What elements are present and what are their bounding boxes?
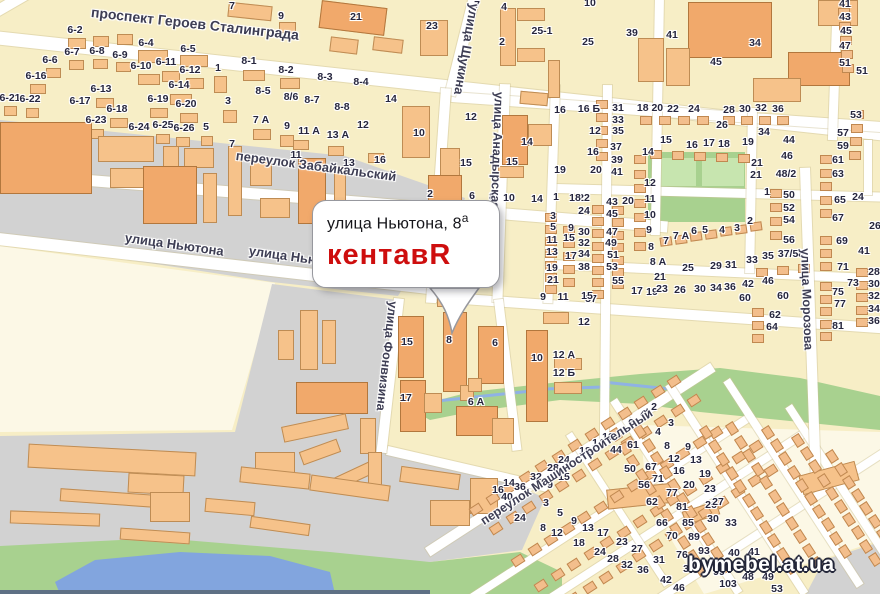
building-number: 62	[646, 497, 658, 508]
building-number: 17	[565, 251, 577, 262]
building-number: 16	[492, 485, 504, 496]
building	[443, 312, 467, 392]
building-number: 41	[611, 167, 623, 178]
building-number: 6-14	[168, 80, 189, 91]
house	[856, 293, 868, 302]
building-number: 32	[578, 238, 590, 249]
house	[741, 116, 753, 125]
building-number: 10	[584, 0, 596, 8]
house	[856, 306, 868, 315]
building	[430, 500, 470, 526]
building-number: 8-4	[353, 77, 368, 88]
building	[214, 76, 227, 93]
building-number: 25	[682, 263, 694, 274]
building-number: 23	[616, 537, 628, 548]
building-number: 8	[648, 242, 654, 253]
building-number: 15	[581, 291, 593, 302]
building	[372, 36, 403, 54]
building-number: 2	[747, 216, 753, 227]
building	[554, 382, 582, 394]
building-number: 9	[284, 121, 290, 132]
building-number: 16	[554, 105, 566, 116]
building-number: 9	[540, 292, 546, 303]
building-number: 20	[590, 165, 602, 176]
building-number: 56	[638, 480, 650, 491]
house	[770, 231, 782, 240]
building-number: 6-5	[180, 44, 195, 55]
building-number: 4	[447, 294, 453, 305]
building-number: 15	[660, 135, 672, 146]
building-number: 70	[666, 531, 678, 542]
building	[223, 110, 237, 123]
house	[672, 151, 684, 160]
building	[117, 34, 133, 45]
building-number: 1	[764, 187, 770, 198]
building-number: 16	[686, 140, 698, 151]
building-number: 6-11	[156, 57, 176, 68]
building-number: 11	[557, 292, 568, 303]
building	[253, 129, 271, 140]
map-callout[interactable]: улица Ньютона, 8а кентавR	[312, 200, 500, 288]
building-number: 8	[664, 441, 670, 452]
building	[150, 108, 168, 118]
building-number: 12	[465, 112, 477, 123]
building-number: 14	[642, 147, 654, 158]
building-number: 8	[540, 523, 546, 534]
building-number: 14	[521, 137, 533, 148]
house	[648, 538, 663, 552]
building-number: 27	[712, 497, 724, 508]
building-number: 33	[746, 255, 758, 266]
building-number: 10	[503, 193, 515, 204]
house	[582, 581, 597, 594]
building-number: 41	[666, 30, 678, 41]
street-segment	[864, 140, 872, 195]
building-number: 19	[742, 137, 754, 148]
house	[752, 308, 764, 317]
building	[69, 60, 84, 70]
building-number: 47	[606, 227, 618, 238]
building	[278, 330, 294, 360]
building-number: 18	[718, 139, 730, 150]
house	[592, 217, 604, 226]
building-number: 6-25	[152, 120, 173, 131]
building-number: 56	[783, 235, 795, 246]
building-number: 36	[724, 282, 736, 293]
building-number: 4	[655, 427, 661, 438]
building-number: 21	[350, 12, 362, 23]
building-number: 51	[839, 58, 851, 69]
building-number: 32	[621, 560, 633, 571]
building-number: 36	[637, 565, 649, 576]
building-number: 28	[723, 105, 735, 116]
building-number: 12	[589, 126, 601, 137]
building-number: 31	[725, 260, 737, 271]
building-number: 10	[644, 210, 656, 221]
building-number: 31	[612, 103, 624, 114]
building-number: 16	[587, 147, 599, 158]
house	[752, 321, 764, 330]
building-number: 26	[869, 221, 880, 232]
building-number: 103	[719, 579, 737, 590]
building-number: 1	[553, 192, 559, 203]
building	[517, 48, 545, 62]
house	[592, 229, 604, 238]
building-number: 26	[674, 285, 686, 296]
building-number: 9	[646, 225, 652, 236]
house	[563, 278, 575, 287]
building-number: 8-1	[241, 56, 256, 67]
building-number: 26	[716, 120, 728, 131]
house	[640, 116, 652, 125]
building-number: 19	[554, 165, 566, 176]
building-number: 69	[836, 236, 848, 247]
building	[26, 108, 39, 118]
building-number: 17	[597, 528, 609, 539]
building	[638, 38, 664, 82]
building-number: 49	[605, 238, 617, 249]
house	[633, 514, 648, 528]
callout-address-sup: а	[462, 211, 469, 225]
building-number: 6-7	[64, 47, 79, 58]
building-number: 12	[668, 454, 680, 465]
building-number: 51	[607, 250, 619, 261]
building-number: 47	[839, 41, 851, 52]
building-number: 3	[550, 211, 556, 222]
building-number: 24	[594, 547, 606, 558]
house	[759, 116, 771, 125]
building-number: 5	[702, 225, 708, 236]
house	[777, 266, 789, 275]
house	[634, 242, 646, 251]
house	[820, 320, 832, 329]
building-number: 6-13	[90, 84, 111, 95]
park-lawn	[656, 158, 696, 186]
building-number: 11 А	[298, 126, 320, 137]
building-number: 19	[546, 263, 558, 274]
building	[328, 146, 344, 156]
building-number: 61	[832, 155, 844, 166]
building-number: 8	[446, 335, 452, 346]
building	[143, 166, 197, 224]
building-number: 18	[569, 193, 581, 204]
building-number: 20	[683, 480, 695, 491]
building-number: 24	[688, 104, 700, 115]
building	[296, 382, 368, 414]
building-number: 14	[531, 194, 543, 205]
building-number: 45	[840, 26, 852, 37]
building-number: 30	[739, 104, 751, 115]
building-number: 23	[426, 21, 438, 32]
building-number: 33	[725, 518, 737, 529]
building-number: 12	[578, 317, 590, 328]
building-number: 7	[229, 139, 235, 150]
bottom-border-bar	[0, 590, 430, 594]
building-number: 6-2	[67, 25, 82, 36]
house	[770, 217, 782, 226]
building-number: 24	[852, 192, 864, 203]
building	[368, 452, 382, 486]
building-number: 8-3	[317, 72, 332, 83]
house	[634, 228, 646, 237]
building	[360, 418, 376, 454]
building-number: 17	[703, 138, 715, 149]
building-number: 71	[837, 262, 849, 273]
house	[716, 153, 728, 162]
building-number: 46	[781, 151, 793, 162]
building-number: 18	[573, 538, 585, 549]
building-number: 46	[762, 276, 774, 287]
building-number: 11	[546, 235, 557, 246]
building-number: 13 А	[327, 130, 349, 141]
building-number: 18 20	[637, 103, 663, 114]
building	[548, 60, 560, 98]
building-number: 11	[644, 194, 655, 205]
building-number: 2	[499, 37, 505, 48]
house	[592, 266, 604, 275]
callout-address-text: улица Ньютона, 8	[327, 215, 462, 232]
building-number: 24	[514, 513, 526, 524]
building-number: 28	[868, 267, 880, 278]
building	[517, 8, 545, 21]
building-number: 34	[578, 249, 590, 260]
building-number: 8-7	[304, 95, 319, 106]
building-number: 7 А	[253, 115, 269, 126]
building-number: 2	[427, 189, 433, 200]
house	[851, 124, 863, 133]
building-number: 67	[832, 213, 844, 224]
building	[243, 70, 265, 81]
building-number: 16	[374, 155, 386, 166]
street-segment	[745, 108, 757, 273]
building	[260, 198, 290, 218]
building-number: 64	[766, 322, 778, 333]
building-number: 3	[734, 223, 740, 234]
building-number: 76	[676, 550, 688, 561]
building	[666, 48, 690, 86]
house	[738, 154, 750, 163]
building-number: 41	[858, 246, 870, 257]
building	[184, 148, 214, 168]
building-number: 35	[612, 126, 624, 137]
building-number: 85	[682, 518, 694, 529]
building-number: 61	[627, 440, 639, 451]
building-number: 30	[578, 227, 590, 238]
building-number: 21	[547, 275, 559, 286]
building-number: 44	[783, 135, 795, 146]
building-number: 6-20	[175, 99, 196, 110]
street-segment	[0, 0, 63, 20]
house	[820, 307, 832, 316]
building-number: 6-17	[69, 96, 90, 107]
building-number: 51	[856, 66, 868, 77]
building-number: 5	[557, 508, 563, 519]
building-number: 10	[413, 128, 425, 139]
house	[820, 295, 832, 304]
building-number: 35	[762, 251, 774, 262]
building-number: 6 А	[468, 397, 484, 408]
building	[329, 36, 359, 54]
callout-address: улица Ньютона, 8а	[327, 211, 489, 233]
building-number: 6-16	[25, 71, 46, 82]
building-number: 45	[710, 57, 722, 68]
building-number: 71	[652, 474, 664, 485]
building-number: 54	[783, 215, 795, 226]
building-number: 44	[610, 445, 622, 456]
building-number: 73	[847, 278, 859, 289]
building-number: 6-12	[179, 65, 200, 76]
building-number: 1	[215, 63, 221, 74]
house	[820, 196, 832, 205]
building-number: 62	[769, 310, 781, 321]
building-number: 39	[611, 155, 623, 166]
building-number: 9	[571, 516, 577, 527]
building-number: 21	[750, 170, 762, 181]
building-number: 46	[673, 583, 685, 594]
building-number: 13	[582, 523, 594, 534]
building-number: 15	[563, 233, 575, 244]
building-number: 34	[710, 283, 722, 294]
house	[820, 282, 832, 291]
building-number: 50	[624, 464, 636, 475]
building-number: 53	[771, 584, 783, 594]
building-number: 77	[834, 299, 846, 310]
building-number: 89	[688, 532, 700, 543]
building-number: 3	[225, 96, 231, 107]
building	[526, 330, 548, 422]
building-number: 29	[710, 261, 722, 272]
building-number: 17	[631, 286, 643, 297]
building-number: 21	[751, 158, 763, 169]
building-number: 6-18	[106, 104, 127, 115]
building-number: 43	[839, 12, 851, 23]
house	[820, 236, 832, 245]
building-number: 39	[626, 28, 638, 39]
building-number: 77	[666, 488, 678, 499]
building-number: 6-9	[112, 50, 127, 61]
building-number: 67	[645, 462, 657, 473]
building-number: 81	[832, 321, 844, 332]
building-number: 19	[699, 469, 711, 480]
building-number: 53	[606, 262, 618, 273]
building-number: 21	[654, 272, 666, 283]
house	[563, 265, 575, 274]
building-number: 34	[868, 304, 880, 315]
building	[478, 326, 504, 384]
building-number: 36	[868, 316, 880, 327]
building-number: 24	[578, 206, 590, 217]
building-number: 30	[694, 284, 706, 295]
building-number: 34	[749, 38, 761, 49]
house	[820, 249, 832, 258]
building-number: 5	[550, 222, 556, 233]
callout-brand: кентавR	[327, 239, 489, 272]
building	[138, 74, 160, 85]
building-number: 6-4	[138, 38, 153, 49]
house	[599, 570, 614, 584]
house	[659, 116, 671, 125]
building-number: 20	[622, 196, 634, 207]
building	[519, 91, 548, 106]
building-number: 8 А	[650, 257, 666, 268]
building-number: 81	[676, 502, 688, 513]
building-number: 15	[460, 158, 472, 169]
building	[280, 135, 294, 147]
house	[820, 155, 832, 164]
building-number: 63	[832, 169, 844, 180]
building-number: 4	[719, 225, 725, 236]
building-number: 12	[357, 120, 369, 131]
house	[592, 205, 604, 214]
house	[697, 116, 709, 125]
building-number: 32	[868, 291, 880, 302]
building-number: 8-8	[334, 102, 349, 113]
building-number: 23	[656, 284, 668, 295]
building-number: 59	[837, 141, 849, 152]
building	[4, 106, 17, 116]
map-layers: 6-26-46-56-66-76-86-96-106-116-1218-18-2…	[0, 0, 880, 594]
building	[280, 78, 300, 89]
building	[492, 418, 514, 444]
building	[468, 378, 482, 392]
building-number: 37	[610, 142, 622, 153]
house	[820, 332, 832, 341]
building-number: 43	[606, 197, 618, 208]
building-number: 16	[673, 466, 685, 477]
building-number: 3	[543, 498, 549, 509]
building	[156, 134, 170, 144]
building-number: 48/2	[776, 169, 796, 180]
building	[46, 68, 61, 78]
house	[850, 137, 862, 146]
building-number: 17	[400, 393, 412, 404]
building-number: 60	[739, 293, 751, 304]
house	[856, 268, 868, 277]
house	[777, 116, 789, 125]
building-number: 7 А	[673, 231, 689, 242]
building-number: 12	[644, 178, 656, 189]
house	[770, 203, 782, 212]
building-number: 65	[834, 195, 846, 206]
house	[820, 169, 832, 178]
building-number: 8-5	[255, 86, 270, 97]
house	[592, 254, 604, 263]
house	[567, 557, 582, 571]
building-number: 6-23	[85, 115, 106, 126]
building-number: 10	[531, 353, 543, 364]
house	[592, 242, 604, 251]
building-number: 52	[783, 203, 795, 214]
building-number: 14	[385, 94, 397, 105]
building-number: 45	[606, 209, 618, 220]
building-number: 6-21	[0, 93, 21, 104]
building-number: 27	[631, 544, 643, 555]
building-number: 12 А	[553, 350, 575, 361]
building-number: 15	[401, 337, 413, 348]
house	[820, 262, 832, 271]
building	[110, 118, 128, 128]
map-canvas[interactable]: 6-26-46-56-66-76-86-96-106-116-1218-18-2…	[0, 0, 880, 594]
building-number: 14	[503, 478, 515, 489]
building	[201, 136, 213, 146]
building-number: 5	[203, 122, 209, 133]
building-number: 66	[656, 518, 668, 529]
building	[98, 136, 154, 162]
building-number: 36	[772, 104, 784, 115]
building	[0, 122, 92, 194]
house	[770, 189, 782, 198]
house	[694, 152, 706, 161]
